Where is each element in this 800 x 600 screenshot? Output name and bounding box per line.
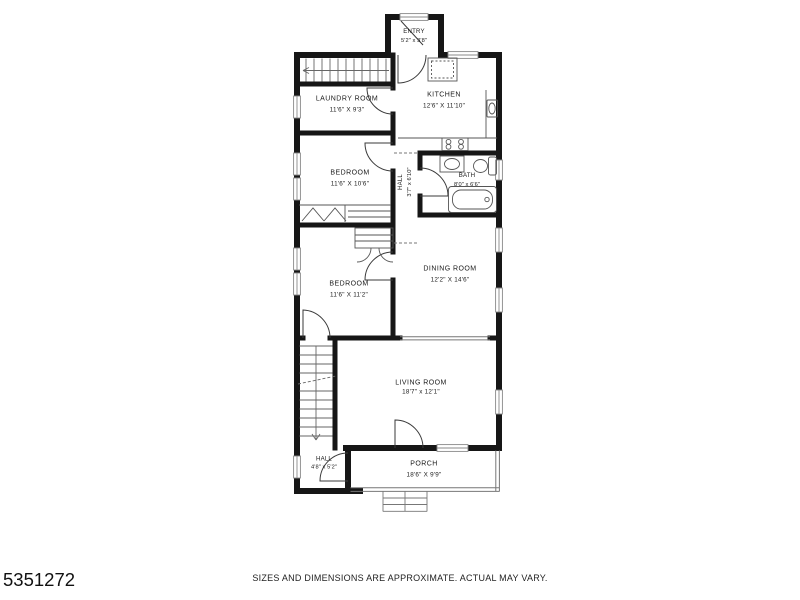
- porch-steps: [383, 492, 427, 512]
- room-label-porch: PORCH 18'6" X 9'9": [406, 459, 441, 482]
- room-label-bath: BATH 8'0" x 6'6": [454, 171, 480, 191]
- room-label-entry: ENTRY 5'2" x 3'8": [401, 27, 427, 47]
- refrigerator-inner: [432, 61, 454, 78]
- listing-id: 5351272: [3, 569, 75, 591]
- closet-bifold-doors: [357, 248, 393, 262]
- room-name: DINING ROOM: [423, 264, 476, 276]
- entry-interior-door: [398, 55, 426, 83]
- room-dims: 4'8" x 5'2": [311, 464, 337, 472]
- room-dims: 8'0" x 6'6": [454, 181, 480, 191]
- room-dims: 11'6" X 11'2": [329, 291, 368, 302]
- room-name: BEDROOM: [330, 168, 369, 180]
- closet-bedroom2: [355, 228, 393, 248]
- room-dims: 11'6" X 9'3": [316, 106, 378, 117]
- floorplan-page: ENTRY 5'2" x 3'8" LAUNDRY ROOM 11'6" X 9…: [0, 0, 800, 600]
- room-label-hall-upper: HALL 3'7" x 6'10": [396, 167, 416, 196]
- room-name: PORCH: [406, 459, 441, 471]
- room-label-laundry: LAUNDRY ROOM 11'6" X 9'3": [316, 94, 378, 117]
- room-dims: 11'6" X 10'6": [330, 180, 369, 191]
- room-label-kitchen: KITCHEN 12'6" X 11'10": [423, 90, 465, 113]
- sink-vanity: [440, 156, 464, 172]
- room-label-dining: DINING ROOM 12'2" X 14'6": [423, 264, 476, 287]
- living-porch-door: [395, 420, 423, 448]
- room-label-bedroom-1: BEDROOM 11'6" X 10'6": [330, 168, 369, 191]
- floor-plan-drawing: [0, 0, 800, 600]
- room-name: KITCHEN: [423, 90, 465, 102]
- staircase-lower: [298, 346, 336, 440]
- room-name: LIVING ROOM: [395, 379, 447, 389]
- room-name: HALL: [311, 456, 337, 465]
- room-dims: 12'2" X 14'6": [423, 276, 476, 287]
- room-label-hall-lower: HALL 4'8" x 5'2": [311, 456, 337, 473]
- room-dims: 18'7" x 12'1": [395, 388, 447, 397]
- stove: [442, 138, 468, 151]
- bedroom2-door: [365, 252, 393, 280]
- room-name: LAUNDRY ROOM: [316, 94, 378, 106]
- room-dims: 18'6" X 9'9": [406, 471, 441, 482]
- bedroom2-second-door: [303, 310, 330, 338]
- room-name: HALL: [396, 167, 406, 196]
- closet-bedroom1: [299, 205, 391, 222]
- disclaimer-text: SIZES AND DIMENSIONS ARE APPROXIMATE. AC…: [252, 573, 547, 583]
- room-dims: 5'2" x 3'8": [401, 37, 427, 47]
- room-dims: 3'7" x 6'10": [406, 167, 416, 196]
- room-name: BEDROOM: [329, 279, 368, 291]
- room-dims: 12'6" X 11'10": [423, 102, 465, 113]
- room-label-bedroom-2: BEDROOM 11'6" X 11'2": [329, 279, 368, 302]
- room-name: ENTRY: [401, 27, 427, 37]
- room-name: BATH: [454, 171, 480, 181]
- staircase-upper: [303, 59, 389, 82]
- room-label-living: LIVING ROOM 18'7" x 12'1": [395, 379, 447, 398]
